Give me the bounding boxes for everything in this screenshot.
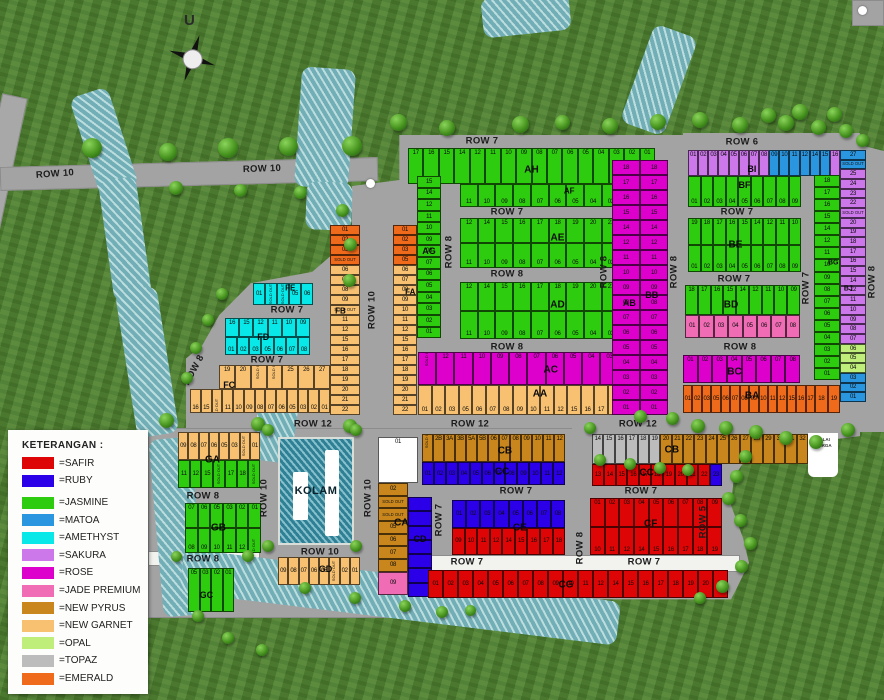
lot-CCR-14[interactable]: 14 — [604, 464, 616, 486]
lot-AA-08[interactable]: 08 — [499, 385, 513, 415]
lot-CE-17[interactable]: 17 — [540, 528, 553, 556]
lot-BC-03[interactable]: 03 — [712, 355, 727, 383]
lot-FC-25[interactable]: 25 — [282, 365, 298, 389]
lot-FC-10[interactable]: 10 — [233, 389, 244, 413]
lot-AE-15[interactable]: 15 — [495, 218, 513, 243]
lot-CCR-13[interactable]: 13 — [592, 464, 604, 486]
lot-AF-10[interactable]: 10 — [478, 184, 496, 207]
lot-BJ-18[interactable]: 18 — [840, 237, 866, 247]
lot-BF-02[interactable]: 02 — [701, 176, 714, 207]
lot-AD-07[interactable]: 07 — [531, 311, 549, 340]
lot-AB-18[interactable]: 18 — [612, 160, 640, 175]
lot-BG-02[interactable]: 02 — [814, 356, 840, 368]
lot-CE-04[interactable]: 04 — [494, 500, 508, 528]
lot-BB-02[interactable]: 02 — [640, 385, 668, 400]
lot-FB-18[interactable]: 18 — [330, 365, 360, 375]
lot-FC-20[interactable]: 20 — [235, 365, 251, 389]
lot-FC-SOLD-OUT[interactable]: SOLD OUT — [267, 365, 283, 389]
lot-BE-03[interactable]: 03 — [713, 245, 726, 272]
lot-BB-14[interactable]: 14 — [640, 220, 668, 235]
lot-AC-09[interactable]: 09 — [491, 352, 509, 385]
lot-FA-17[interactable]: 17 — [393, 355, 417, 365]
lot-BI-10[interactable]: 10 — [779, 150, 789, 176]
lot-AG-01[interactable]: 01 — [417, 327, 441, 339]
lot-BE-08[interactable]: 08 — [776, 245, 789, 272]
lot-BJ-05[interactable]: 05 — [840, 353, 866, 363]
lot-AD-04[interactable]: 04 — [584, 311, 602, 340]
lot-AG-04[interactable]: 04 — [417, 292, 441, 304]
lot-FB-22[interactable]: 22 — [330, 405, 360, 415]
lot-CBR-25[interactable]: 25 — [717, 434, 728, 464]
lot-GA-SOLD-OUT[interactable]: SOLD OUT — [240, 432, 250, 460]
lot-AG-11[interactable]: 11 — [417, 211, 441, 223]
lot-BJ-SOLD-OUT[interactable]: SOLD OUT — [840, 160, 866, 170]
lot-BD-16[interactable]: 16 — [711, 285, 724, 315]
lot-BD-02[interactable]: 02 — [699, 315, 713, 338]
lot-CCL-02[interactable]: 02 — [434, 462, 446, 485]
lot-CF-06[interactable]: 06 — [663, 498, 678, 527]
lot-BE-14[interactable]: 14 — [751, 218, 764, 245]
lot-CF-07[interactable]: 07 — [678, 498, 693, 527]
lot-BB-04[interactable]: 04 — [640, 355, 668, 370]
lot-BD-04[interactable]: 04 — [728, 315, 742, 338]
lot-CBL-2B[interactable]: 2B — [433, 434, 444, 462]
lot-BI-03[interactable]: 03 — [708, 150, 718, 176]
lot-BJ-22[interactable]: 22 — [840, 198, 866, 208]
lot-AH-07[interactable]: 07 — [547, 148, 562, 184]
lot-AG-02[interactable]: 02 — [417, 315, 441, 327]
lot-BG-01[interactable]: 01 — [814, 368, 840, 380]
lot-BI-02[interactable]: 02 — [698, 150, 708, 176]
lot-BB-16[interactable]: 16 — [640, 190, 668, 205]
lot-AC-12[interactable]: 12 — [436, 352, 454, 385]
lot-BE-18[interactable]: 18 — [701, 218, 714, 245]
lot-BF-01[interactable]: 01 — [688, 176, 701, 207]
lot-BI-04[interactable]: 04 — [718, 150, 728, 176]
lot-BI-16[interactable]: 16 — [830, 150, 840, 176]
lot-CCL-05[interactable]: 05 — [470, 462, 482, 485]
lot-FE-01[interactable]: 01 — [253, 283, 265, 305]
lot-BJ-01[interactable]: 01 — [840, 392, 866, 402]
lot-FE-06[interactable]: 06 — [301, 283, 313, 305]
lot-CF-09[interactable]: 09 — [707, 498, 722, 527]
lot-AD-09[interactable]: 09 — [495, 311, 513, 340]
lot-BG-09[interactable]: 09 — [814, 272, 840, 284]
lot-AB-09[interactable]: 09 — [612, 280, 640, 295]
lot-AE-08[interactable]: 08 — [513, 243, 531, 268]
lot-CBR-32[interactable]: 32 — [797, 434, 808, 464]
lot-FA-01[interactable]: 01 — [393, 225, 417, 235]
lot-FB-11[interactable]: 11 — [330, 315, 360, 325]
lot-BJ-20[interactable]: 20 — [840, 218, 866, 228]
lot-AC-11[interactable]: 11 — [454, 352, 472, 385]
lot-GD-07[interactable]: 07 — [299, 557, 309, 585]
lot-BB-05[interactable]: 05 — [640, 340, 668, 355]
lot-BB-06[interactable]: 06 — [640, 325, 668, 340]
lot-AA-09[interactable]: 09 — [513, 385, 527, 415]
lot-CG-03[interactable]: 03 — [458, 570, 473, 598]
lot-CCL-12[interactable]: 12 — [553, 462, 565, 485]
lot-AD-16[interactable]: 16 — [513, 282, 531, 311]
lot-FA-11[interactable]: 11 — [393, 315, 417, 325]
lot-FB-20[interactable]: 20 — [330, 385, 360, 395]
lot-AH-15[interactable]: 15 — [439, 148, 454, 184]
lot-AE-09[interactable]: 09 — [495, 243, 513, 268]
lot-BJ-11[interactable]: 11 — [840, 295, 866, 305]
lot-CBL-10[interactable]: 10 — [532, 434, 543, 462]
lot-BG-11[interactable]: 11 — [814, 247, 840, 259]
lot-BJ-19[interactable]: 19 — [840, 228, 866, 238]
lot-AA-03[interactable]: 03 — [445, 385, 459, 415]
lot-CA-06[interactable]: 06 — [378, 534, 408, 547]
lot-BD-17[interactable]: 17 — [698, 285, 711, 315]
lot-CD-0[interactable] — [408, 497, 432, 511]
lot-CA-09[interactable]: 09 — [378, 572, 408, 595]
lot-BF-06[interactable]: 06 — [751, 176, 764, 207]
lot-BG-12[interactable]: 12 — [814, 235, 840, 247]
lot-AE-12[interactable]: 12 — [460, 218, 478, 243]
lot-AH-04[interactable]: 04 — [593, 148, 608, 184]
lot-CG-12[interactable]: 12 — [593, 570, 608, 598]
lot-CE-03[interactable]: 03 — [480, 500, 494, 528]
lot-AD-14[interactable]: 14 — [478, 282, 496, 311]
lot-AE-17[interactable]: 17 — [531, 218, 549, 243]
lot-FB-01[interactable]: 01 — [330, 225, 360, 235]
lot-AG-12[interactable]: 12 — [417, 199, 441, 211]
lot-CBL-11[interactable]: 11 — [543, 434, 554, 462]
lot-BD-01[interactable]: 01 — [685, 315, 699, 338]
lot-BG-05[interactable]: 05 — [814, 320, 840, 332]
lot-CG-06[interactable]: 06 — [503, 570, 518, 598]
lot-GC-05[interactable]: 05 — [188, 568, 200, 612]
lot-GD-08[interactable]: 08 — [288, 557, 298, 585]
lot-AC-05[interactable]: 05 — [564, 352, 582, 385]
lot-BB-15[interactable]: 15 — [640, 205, 668, 220]
lot-BF-09[interactable]: 09 — [789, 176, 802, 207]
lot-BI-11[interactable]: 11 — [789, 150, 799, 176]
lot-BJ-10[interactable]: 10 — [840, 305, 866, 315]
lot-GD-09[interactable]: 09 — [278, 557, 288, 585]
lot-AA-12[interactable]: 12 — [554, 385, 568, 415]
lot-BC-08[interactable]: 08 — [785, 355, 800, 383]
lot-GA-03[interactable]: 03 — [229, 432, 239, 460]
lot-CE-11[interactable]: 11 — [477, 528, 490, 556]
lot-AE-10[interactable]: 10 — [478, 243, 496, 268]
lot-FB-08[interactable]: 08 — [330, 285, 360, 295]
lot-FA-20[interactable]: 20 — [393, 385, 417, 395]
lot-CF-14[interactable]: 14 — [634, 527, 649, 556]
lot-AH-14[interactable]: 14 — [454, 148, 469, 184]
lot-CE-07[interactable]: 07 — [537, 500, 551, 528]
lot-BD-11[interactable]: 11 — [762, 285, 775, 315]
lot-BE-11[interactable]: 11 — [776, 218, 789, 245]
lot-BG-04[interactable]: 04 — [814, 332, 840, 344]
lot-AG-07[interactable]: 07 — [417, 257, 441, 269]
lot-AE-11[interactable]: 11 — [460, 243, 478, 268]
lot-GD-01[interactable]: 01 — [350, 557, 360, 585]
lot-FB-16[interactable]: 16 — [330, 345, 360, 355]
lot-CCR-22[interactable]: 22 — [698, 464, 710, 486]
lot-AF-11[interactable]: 11 — [460, 184, 478, 207]
lot-CA-07[interactable]: 07 — [378, 546, 408, 559]
lot-BE-01[interactable]: 01 — [688, 245, 701, 272]
lot-GD-06[interactable]: 06 — [309, 557, 319, 585]
lot-BA-10[interactable]: 10 — [759, 385, 768, 413]
lot-GA-12[interactable]: 12 — [190, 460, 202, 488]
lot-AE-14[interactable]: 14 — [478, 218, 496, 243]
lot-FC-01[interactable]: 01 — [319, 389, 330, 413]
lot-GB-SOLD-OUT[interactable]: SOLD OUT — [248, 528, 261, 553]
pool-area[interactable]: KOLAM — [278, 437, 354, 545]
lot-GB-06[interactable]: 06 — [198, 503, 211, 528]
lot-AA-15[interactable]: 15 — [567, 385, 581, 415]
lot-AB-15[interactable]: 15 — [612, 205, 640, 220]
lot-CD-4[interactable] — [408, 554, 432, 568]
lot-BA-02[interactable]: 02 — [692, 385, 701, 413]
lot-FA-18[interactable]: 18 — [393, 365, 417, 375]
lot-AB-06[interactable]: 06 — [612, 325, 640, 340]
lot-CBR-29[interactable]: 29 — [763, 434, 774, 464]
lot-BI-01[interactable]: 01 — [688, 150, 698, 176]
lot-BD-09[interactable]: 09 — [787, 285, 800, 315]
lot-CF-19[interactable]: 19 — [707, 527, 722, 556]
lot-AH-12[interactable]: 12 — [470, 148, 485, 184]
lot-FA-09[interactable]: 09 — [393, 295, 417, 305]
lot-BG-15[interactable]: 15 — [814, 211, 840, 223]
lot-AB-16[interactable]: 16 — [612, 190, 640, 205]
lot-CG-02[interactable]: 02 — [443, 570, 458, 598]
lot-BB-10[interactable]: 10 — [640, 265, 668, 280]
lot-CE-12[interactable]: 12 — [490, 528, 503, 556]
lot-AB-07[interactable]: 07 — [612, 310, 640, 325]
lot-CBL-3B[interactable]: 3B — [455, 434, 466, 462]
lot-AD-08[interactable]: 08 — [513, 311, 531, 340]
lot-AG-15[interactable]: 15 — [417, 176, 441, 188]
lot-FA-10[interactable]: 10 — [393, 305, 417, 315]
lot-FD-09[interactable]: 09 — [296, 318, 310, 337]
lot-FA-16[interactable]: 16 — [393, 345, 417, 355]
lot-BJ-25[interactable]: 25 — [840, 169, 866, 179]
lot-CCL-04[interactable]: 04 — [458, 462, 470, 485]
lot-CBL-5A[interactable]: 5A — [466, 434, 477, 462]
lot-AH-05[interactable]: 05 — [578, 148, 593, 184]
lot-BF-08[interactable]: 08 — [776, 176, 789, 207]
lot-GB-08[interactable]: 08 — [185, 528, 198, 553]
lot-BB-12[interactable]: 12 — [640, 235, 668, 250]
lot-BA-15[interactable]: 15 — [787, 385, 796, 413]
lot-FC-15[interactable]: 15 — [201, 389, 212, 413]
lot-GA-01[interactable]: 01 — [250, 432, 260, 460]
lot-AA-07[interactable]: 07 — [486, 385, 500, 415]
lot-BG-03[interactable]: 03 — [814, 344, 840, 356]
lot-BG-08[interactable]: 08 — [814, 284, 840, 296]
lot-FB-21[interactable]: 21 — [330, 395, 360, 405]
lot-AE-16[interactable]: 16 — [513, 218, 531, 243]
lot-GD-02[interactable]: 02 — [340, 557, 350, 585]
lot-CBL-12[interactable]: 12 — [554, 434, 565, 462]
lot-FB-SOLD-OUT[interactable]: SOLD OUT — [330, 255, 360, 265]
lot-GC-01[interactable]: 01 — [223, 568, 235, 612]
lot-AB-10[interactable]: 10 — [612, 265, 640, 280]
lot-CCL-11[interactable]: 11 — [541, 462, 553, 485]
lot-CBL-3A[interactable]: 3A — [444, 434, 455, 462]
lot-BA-11[interactable]: 11 — [768, 385, 777, 413]
lot-BJ-23[interactable]: 23 — [840, 189, 866, 199]
lot-BD-12[interactable]: 12 — [749, 285, 762, 315]
lot-AD-06[interactable]: 06 — [549, 311, 567, 340]
lot-FB-12[interactable]: 12 — [330, 325, 360, 335]
lot-CG-16[interactable]: 16 — [638, 570, 653, 598]
lot-BE-19[interactable]: 19 — [688, 218, 701, 245]
lot-FC-08[interactable]: 08 — [255, 389, 266, 413]
lot-CF-03[interactable]: 03 — [619, 498, 634, 527]
lot-CE-10[interactable]: 10 — [465, 528, 478, 556]
lot-FD-01[interactable]: 01 — [225, 337, 237, 356]
lot-CF-16[interactable]: 16 — [663, 527, 678, 556]
lot-CBR-23[interactable]: 23 — [694, 434, 705, 464]
lot-FD-10[interactable]: 10 — [282, 318, 296, 337]
lot-BB-03[interactable]: 03 — [640, 370, 668, 385]
lot-CG-08[interactable]: 08 — [533, 570, 548, 598]
lot-BJ-09[interactable]: 09 — [840, 315, 866, 325]
lot-CF-01[interactable]: 01 — [590, 498, 605, 527]
lot-BG-18[interactable]: 18 — [814, 175, 840, 187]
lot-CE-16[interactable]: 16 — [527, 528, 540, 556]
lot-CCL-06[interactable]: 06 — [482, 462, 494, 485]
lot-CBR-22[interactable]: 22 — [683, 434, 694, 464]
lot-CE-08[interactable]: 08 — [551, 500, 565, 528]
lot-CD-1[interactable] — [408, 511, 432, 525]
lot-FD-16[interactable]: 16 — [225, 318, 239, 337]
lot-BI-12[interactable]: 12 — [800, 150, 810, 176]
lot-BF-04[interactable]: 04 — [726, 176, 739, 207]
lot-AE-19[interactable]: 19 — [566, 218, 584, 243]
lot-FB-17[interactable]: 17 — [330, 355, 360, 365]
lot-CE-09[interactable]: 09 — [452, 528, 465, 556]
lot-FD-08[interactable]: 08 — [298, 337, 310, 356]
lot-CG-17[interactable]: 17 — [653, 570, 668, 598]
lot-BA-12[interactable]: 12 — [777, 385, 786, 413]
lot-CBR-26[interactable]: 26 — [729, 434, 740, 464]
lot-AD-17[interactable]: 17 — [531, 282, 549, 311]
lot-BG-14[interactable]: 14 — [814, 223, 840, 235]
lot-AB-17[interactable]: 17 — [612, 175, 640, 190]
lot-BF-07[interactable]: 07 — [763, 176, 776, 207]
lot-CBR-24[interactable]: 24 — [706, 434, 717, 464]
lot-CG-15[interactable]: 15 — [623, 570, 638, 598]
lot-FC-16[interactable]: 16 — [190, 389, 201, 413]
lot-BG-16[interactable]: 16 — [814, 199, 840, 211]
lot-BJ-SOLD-OUT[interactable]: SOLD OUT — [840, 208, 866, 218]
lot-AB-11[interactable]: 11 — [612, 250, 640, 265]
lot-BA-18[interactable]: 18 — [815, 385, 827, 413]
lot-BJ-07[interactable]: 07 — [840, 334, 866, 344]
lot-BA-16[interactable]: 16 — [796, 385, 805, 413]
lot-GA-18[interactable]: 18 — [237, 460, 249, 488]
lot-CCL-09[interactable]: 09 — [517, 462, 529, 485]
lot-BJ-03[interactable]: 03 — [840, 373, 866, 383]
lot-BA-03[interactable]: 03 — [702, 385, 711, 413]
lot-AA-17[interactable]: 17 — [594, 385, 608, 415]
lot-FA-05[interactable]: 05 — [393, 255, 417, 265]
lot-AA-16[interactable]: 16 — [581, 385, 595, 415]
lot-FA-07[interactable]: 07 — [393, 275, 417, 285]
lot-BB-18[interactable]: 18 — [640, 160, 668, 175]
lot-BD-10[interactable]: 10 — [774, 285, 787, 315]
lot-FA-22[interactable]: 22 — [393, 405, 417, 415]
lot-AC-08[interactable]: 08 — [509, 352, 527, 385]
lot-BJ-15[interactable]: 15 — [840, 266, 866, 276]
lot-CF-02[interactable]: 02 — [605, 498, 620, 527]
lot-AA-02[interactable]: 02 — [432, 385, 446, 415]
lot-BJ-16[interactable]: 16 — [840, 257, 866, 267]
lot-FC-07[interactable]: 07 — [265, 389, 276, 413]
lot-BF-03[interactable]: 03 — [713, 176, 726, 207]
lot-BB-07[interactable]: 07 — [640, 310, 668, 325]
lot-AD-10[interactable]: 10 — [478, 311, 496, 340]
lot-FD-07[interactable]: 07 — [286, 337, 298, 356]
lot-AH-11[interactable]: 11 — [485, 148, 500, 184]
lot-CBL-SOLD-OUT[interactable]: SOLD OUT — [422, 434, 433, 462]
lot-AE-05[interactable]: 05 — [566, 243, 584, 268]
lot-BC-05[interactable]: 05 — [742, 355, 757, 383]
lot-BA-01[interactable]: 01 — [683, 385, 692, 413]
lot-AE-20[interactable]: 20 — [584, 218, 602, 243]
lot-CA-SOLD-OUT[interactable]: SOLD OUT — [378, 496, 408, 509]
lot-BD-18[interactable]: 18 — [685, 285, 698, 315]
lot-FA-03[interactable]: 03 — [393, 245, 417, 255]
lot-AF-09[interactable]: 09 — [495, 184, 513, 207]
lot-AA-01[interactable]: 01 — [418, 385, 432, 415]
lot-CG-05[interactable]: 05 — [488, 570, 503, 598]
lot-AG-03[interactable]: 03 — [417, 303, 441, 315]
lot-AD-12[interactable]: 12 — [460, 282, 478, 311]
lot-AA-06[interactable]: 06 — [472, 385, 486, 415]
lot-BD-06[interactable]: 06 — [757, 315, 771, 338]
lot-BD-07[interactable]: 07 — [771, 315, 785, 338]
lot-CF-17[interactable]: 17 — [678, 527, 693, 556]
lot-FA-19[interactable]: 19 — [393, 375, 417, 385]
lot-AC-10[interactable]: 10 — [473, 352, 491, 385]
lot-AC-SOLD-OUT[interactable]: SOLD OUT — [418, 352, 436, 385]
lot-FA-02[interactable]: 02 — [393, 235, 417, 245]
lot-BI-09[interactable]: 09 — [769, 150, 779, 176]
lot-BI-05[interactable]: 05 — [729, 150, 739, 176]
lot-FA-15[interactable]: 15 — [393, 335, 417, 345]
lot-AD-05[interactable]: 05 — [566, 311, 584, 340]
lot-CE-02[interactable]: 02 — [466, 500, 480, 528]
lot-FC-SOLD-OUT[interactable]: SOLD OUT — [212, 389, 223, 413]
lot-FC-06[interactable]: 06 — [276, 389, 287, 413]
lot-FB-19[interactable]: 19 — [330, 375, 360, 385]
lot-AH-06[interactable]: 06 — [562, 148, 577, 184]
lot-CG-04[interactable]: 04 — [473, 570, 488, 598]
lot-BJ-27[interactable]: 27 — [840, 150, 866, 160]
lot-BE-09[interactable]: 09 — [789, 245, 802, 272]
lot-BC-02[interactable]: 02 — [698, 355, 713, 383]
lot-BC-06[interactable]: 06 — [756, 355, 771, 383]
lot-AB-12[interactable]: 12 — [612, 235, 640, 250]
lot-BG-06[interactable]: 06 — [814, 308, 840, 320]
lot-AE-06[interactable]: 06 — [549, 243, 567, 268]
lot-AD-15[interactable]: 15 — [495, 282, 513, 311]
lot-GA-11[interactable]: 11 — [178, 460, 190, 488]
lot-CF-10[interactable]: 10 — [590, 527, 605, 556]
lot-AB-04[interactable]: 04 — [612, 355, 640, 370]
lot-GA-05[interactable]: 05 — [219, 432, 229, 460]
lot-CG-11[interactable]: 11 — [578, 570, 593, 598]
lot-BJ-02[interactable]: 02 — [840, 383, 866, 393]
